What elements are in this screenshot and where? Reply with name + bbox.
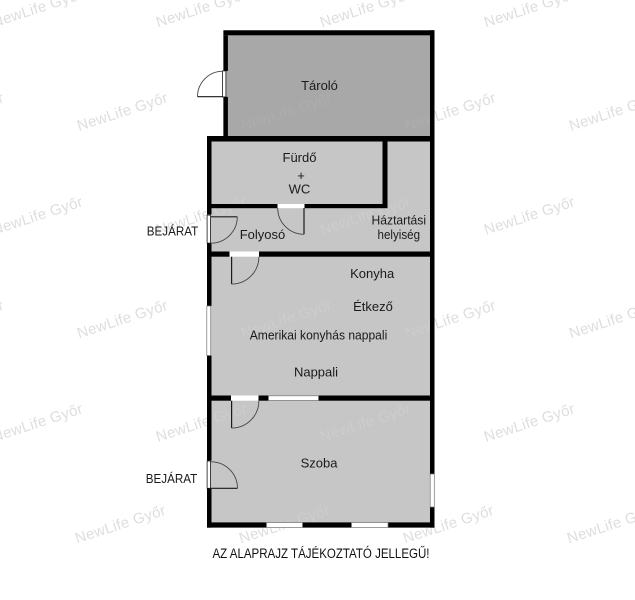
svg-text:Nappali: Nappali xyxy=(294,365,338,380)
svg-text:Háztartási: Háztartási xyxy=(372,213,427,228)
svg-text:Tároló: Tároló xyxy=(301,78,338,93)
svg-text:AZ ALAPRAJZ TÁJÉKOZTATÓ JELLEG: AZ ALAPRAJZ TÁJÉKOZTATÓ JELLEGŰ! xyxy=(213,546,430,561)
svg-text:Konyha: Konyha xyxy=(350,266,395,281)
svg-text:Szoba: Szoba xyxy=(301,456,339,471)
svg-text:Amerikai konyhás nappali: Amerikai konyhás nappali xyxy=(250,328,388,343)
svg-text:helyiség: helyiség xyxy=(378,227,421,242)
svg-text:BEJÁRAT: BEJÁRAT xyxy=(146,471,198,486)
svg-text:Folyosó: Folyosó xyxy=(240,227,286,242)
svg-text:BEJÁRAT: BEJÁRAT xyxy=(147,224,199,239)
svg-text:Fürdő: Fürdő xyxy=(283,150,317,165)
svg-text:WC: WC xyxy=(289,182,311,197)
svg-text:Étkező: Étkező xyxy=(353,299,393,314)
